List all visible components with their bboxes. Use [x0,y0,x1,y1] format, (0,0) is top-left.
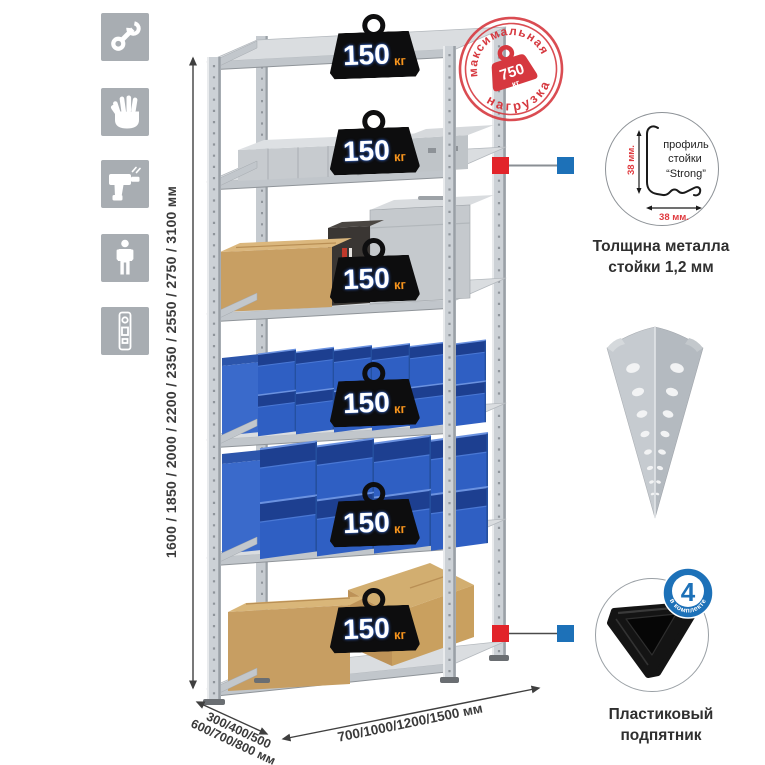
load-unit: кг [394,626,406,641]
wrench-icon [101,13,149,61]
thickness-caption: Толщина металла стойки 1,2 мм [576,236,746,278]
count-badge: 4 в комплекте [661,566,715,620]
foot-caption-line2: подпятник [620,727,701,744]
drill-icon [101,160,149,208]
shelf-load-badge: 150кг [328,586,420,653]
profile-dim-vertical: 38 мм. [626,145,637,175]
shelf-load-badge: 150кг [328,360,420,427]
load-value: 150 [343,136,391,166]
level-icon [101,307,149,355]
load-value: 150 [343,388,391,418]
profile-label-3: “Strong” [666,168,706,180]
max-load-stamp: максимальная нагрузка 750 кг [456,14,566,124]
load-value: 150 [343,614,391,644]
post-profile-detail: 38 мм. 38 мм. профиль стойки “Strong” [605,112,719,226]
foot-caption: Пластиковый подпятник [576,704,746,746]
count-value: 4 [681,577,696,607]
foot-caption-line1: Пластиковый [609,706,714,723]
load-unit: кг [394,520,406,535]
person-icon [101,234,149,282]
load-value: 150 [343,264,391,294]
load-value: 150 [343,508,391,538]
load-unit: кг [394,148,406,163]
load-unit: кг [394,400,406,415]
load-unit: кг [394,52,406,67]
profile-label-2: стойки [668,153,702,165]
callout-blue-marker [557,157,574,174]
gloves-icon [101,88,149,136]
profile-label-1: профиль [663,139,709,151]
thickness-caption-line2: стойки 1,2 мм [608,259,713,276]
shelf-load-badge: 150кг [328,480,420,547]
profile-dim-horizontal: 38 мм. [659,212,689,223]
shelf-load-badge: 150кг [328,108,420,175]
load-value: 150 [343,40,391,70]
shelf-load-badge: 150кг [328,236,420,303]
depth-dimension-label2: 600/700/800 мм [189,716,278,765]
shelf-load-badge: 150кг [328,12,420,79]
product-infographic: 1600 / 1850 / 2000 / 2200 / 2350 / 2550 … [0,0,765,765]
thickness-caption-line1: Толщина металла [593,238,730,255]
callout-blue-marker [557,625,574,642]
height-dimension-label: 1600 / 1850 / 2000 / 2200 / 2350 / 2550 … [163,47,179,697]
load-unit: кг [394,276,406,291]
angle-post-image [593,310,721,528]
